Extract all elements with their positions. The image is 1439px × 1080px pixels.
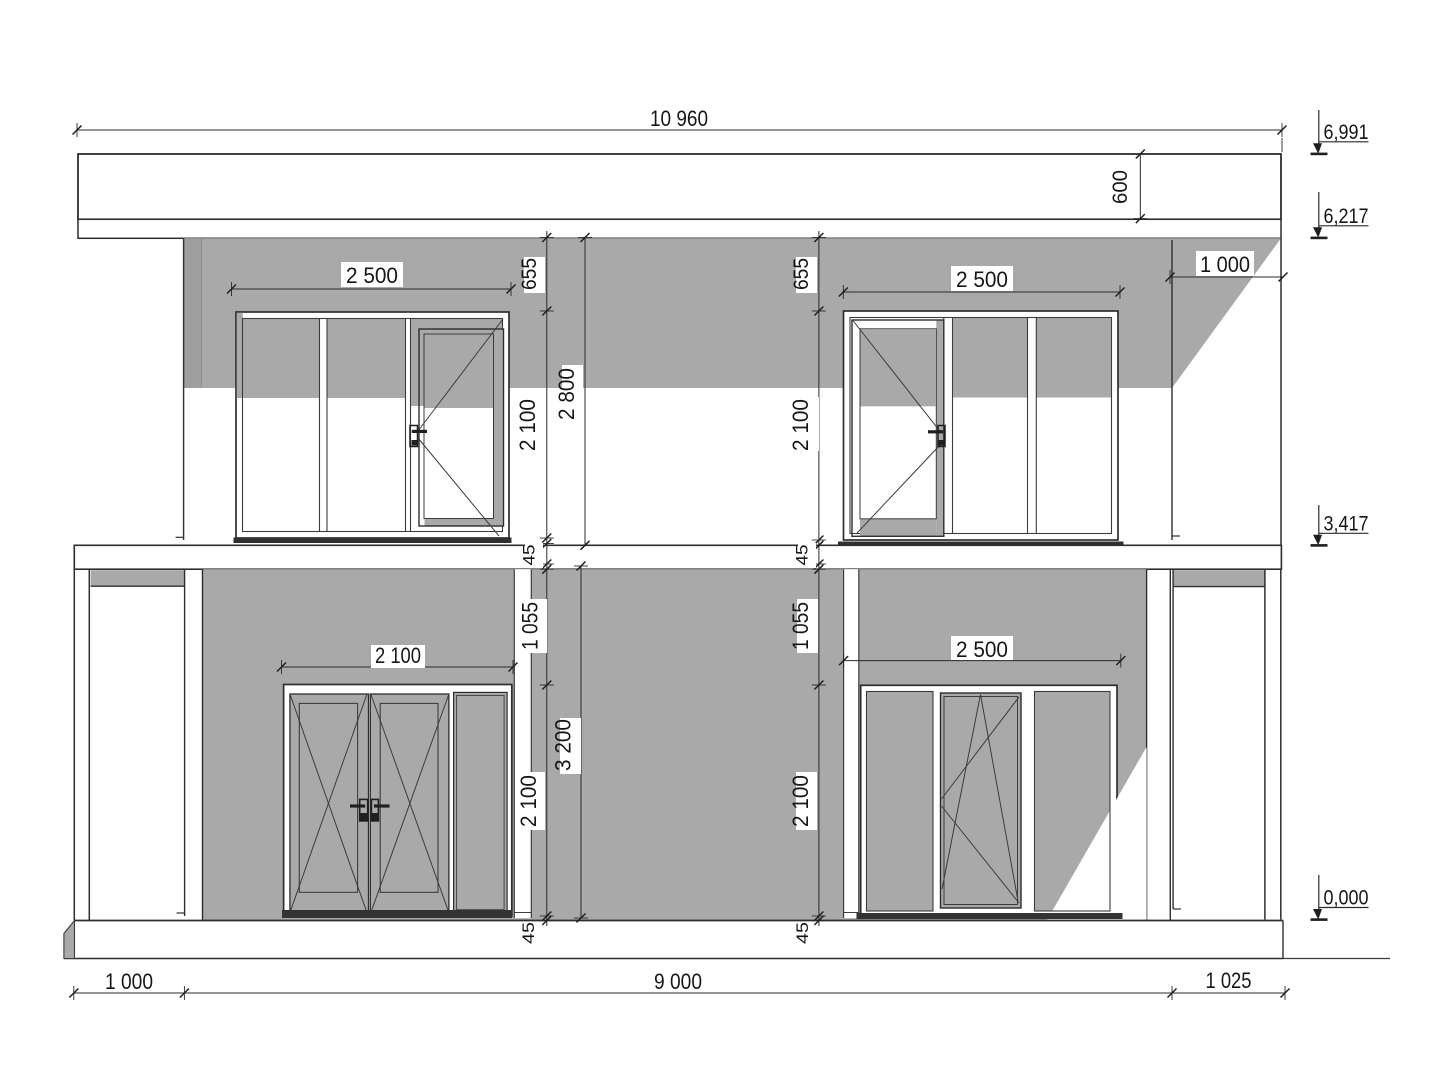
svg-text:45: 45	[520, 545, 539, 566]
svg-text:2 500: 2 500	[956, 267, 1008, 292]
svg-text:45: 45	[793, 545, 812, 566]
svg-text:2 100: 2 100	[375, 643, 421, 668]
svg-text:2 800: 2 800	[554, 368, 579, 420]
svg-text:2 100: 2 100	[788, 775, 813, 827]
svg-text:2 500: 2 500	[956, 637, 1008, 662]
svg-text:1 000: 1 000	[1200, 252, 1250, 277]
svg-text:655: 655	[518, 258, 541, 290]
svg-text:2 100: 2 100	[515, 399, 540, 451]
svg-text:3,417: 3,417	[1324, 512, 1369, 535]
svg-text:3 200: 3 200	[551, 719, 576, 771]
svg-text:45: 45	[793, 922, 812, 944]
svg-text:2 100: 2 100	[516, 775, 541, 827]
svg-text:45: 45	[519, 922, 538, 944]
svg-text:0,000: 0,000	[1324, 887, 1369, 910]
svg-text:2 500: 2 500	[346, 263, 398, 288]
svg-text:1 055: 1 055	[788, 602, 813, 650]
svg-text:6,991: 6,991	[1324, 121, 1369, 144]
svg-text:6,217: 6,217	[1324, 205, 1369, 228]
svg-text:1 055: 1 055	[518, 602, 543, 650]
svg-text:1 000: 1 000	[105, 969, 153, 994]
svg-text:1 025: 1 025	[1206, 968, 1252, 993]
svg-text:9 000: 9 000	[654, 969, 702, 994]
svg-text:600: 600	[1109, 170, 1132, 204]
svg-text:655: 655	[790, 258, 813, 290]
svg-text:10 960: 10 960	[650, 106, 708, 131]
svg-text:2 100: 2 100	[788, 399, 813, 451]
